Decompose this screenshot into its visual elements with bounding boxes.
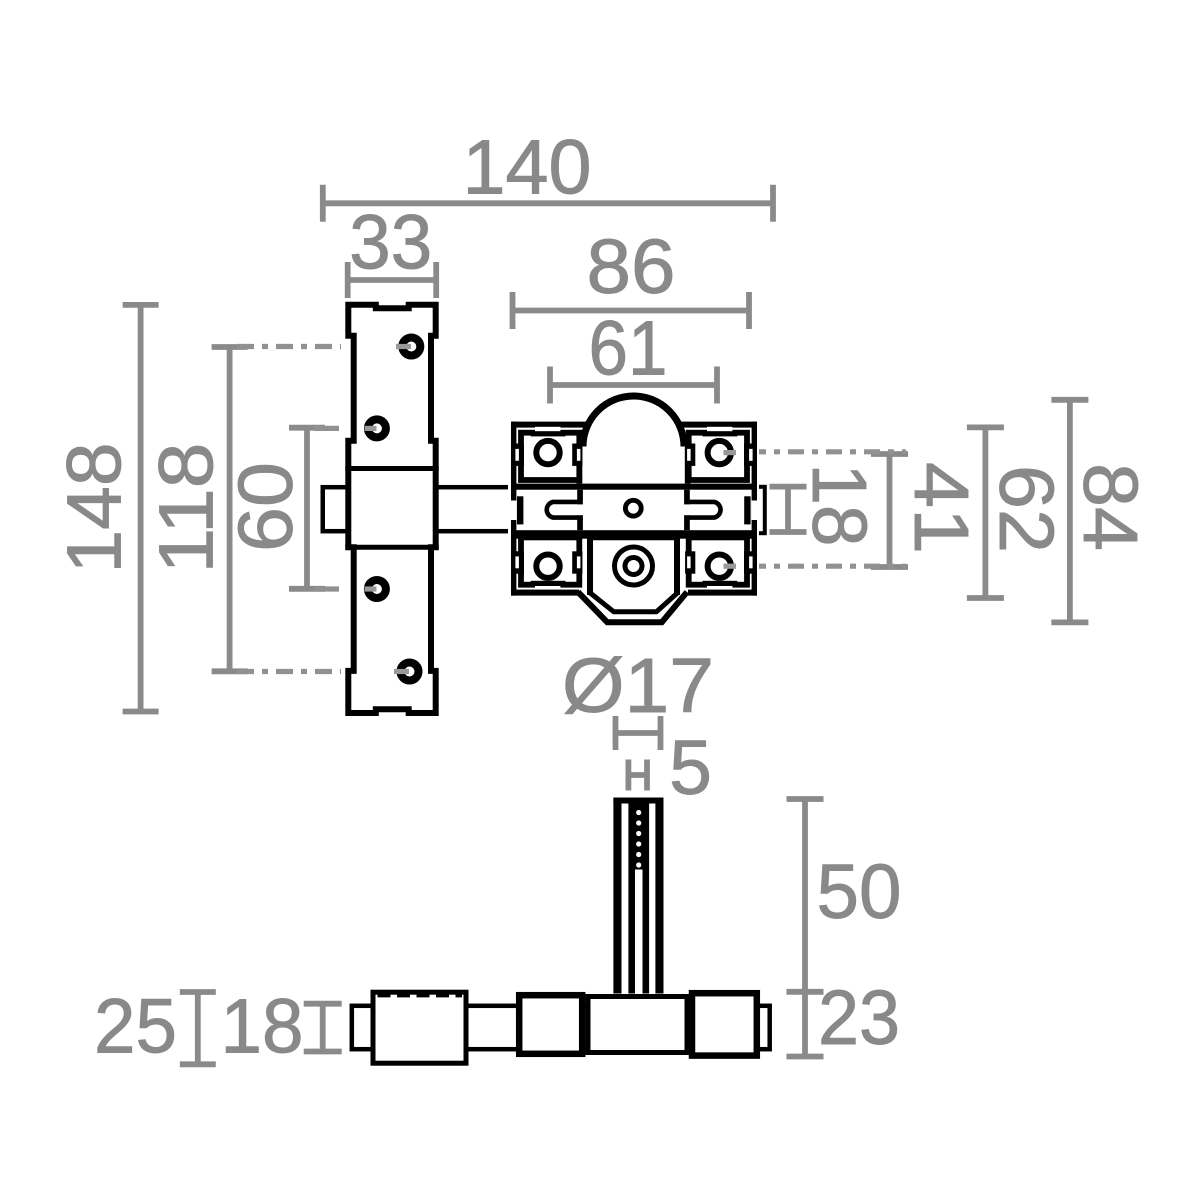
svg-text:86: 86 (587, 224, 676, 310)
svg-text:18: 18 (796, 464, 882, 547)
svg-text:60: 60 (223, 462, 309, 552)
svg-text:5: 5 (669, 725, 712, 811)
svg-text:18: 18 (221, 984, 304, 1070)
svg-text:23: 23 (818, 975, 900, 1061)
svg-text:25: 25 (94, 984, 177, 1070)
svg-text:84: 84 (1067, 463, 1153, 551)
svg-text:148: 148 (52, 443, 138, 574)
svg-text:61: 61 (589, 306, 668, 392)
svg-text:62: 62 (983, 465, 1069, 553)
svg-text:Ø17: Ø17 (562, 643, 714, 729)
svg-text:41: 41 (898, 462, 984, 554)
svg-text:50: 50 (817, 849, 902, 935)
svg-text:140: 140 (463, 125, 592, 211)
svg-text:33: 33 (349, 200, 432, 286)
svg-text:118: 118 (144, 443, 230, 574)
